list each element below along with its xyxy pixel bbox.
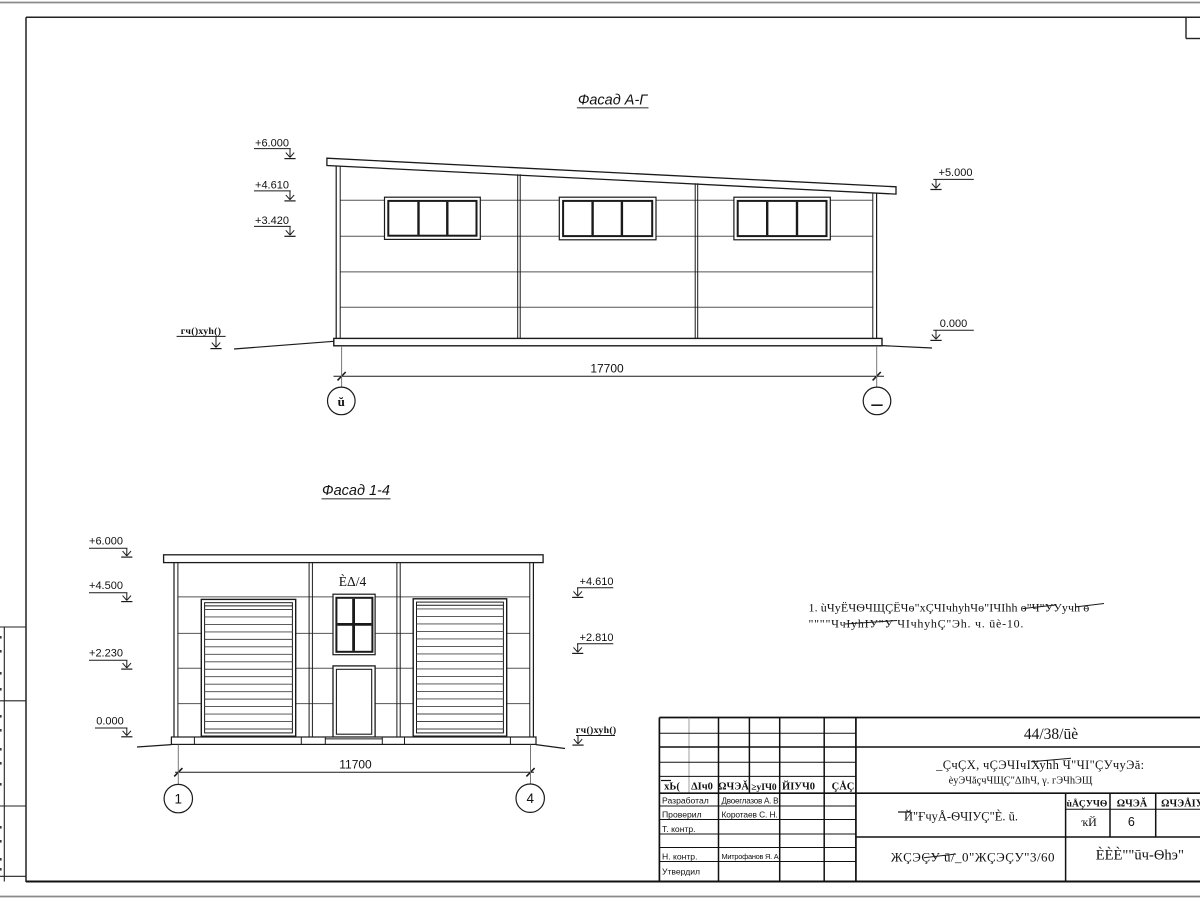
svg-text:4: 4 (526, 791, 534, 806)
svg-text:ЖÇЭÇУ ū/_0"ЖÇЭÇУ"3/60: ЖÇЭÇУ ū/_0"ЖÇЭÇУ"3/60 (891, 849, 1055, 864)
svg-text:Двоеглазов А. В.: Двоеглазов А. В. (722, 796, 781, 805)
svg-text:Митрофанов Я. А.: Митрофанов Я. А. (722, 852, 781, 861)
svg-text:гч()хуh(): гч()хуh() (181, 326, 222, 337)
svg-text:Коротаев С. Н.: Коротаев С. Н. (722, 809, 778, 819)
svg-text:+5.000: +5.000 (939, 167, 973, 179)
svg-text:Т. контр.: Т. контр. (662, 824, 696, 834)
svg-text:Й"ҒчуÅ-ѲЧІУÇ"È. ŭ.: Й"ҒчуÅ-ѲЧІУÇ"È. ŭ. (904, 809, 1018, 823)
svg-text:ΩЧЭĂ: ΩЧЭĂ (718, 780, 749, 792)
svg-text:_ÇчÇХ, чÇЭЧІчІХуhh Ч"ЧІ"ÇУчуЭă: _ÇчÇХ, чÇЭЧІчІХуhh Ч"ЧІ"ÇУчуЭă: (935, 758, 1144, 772)
svg-text:хЬ(: хЬ( (664, 781, 680, 792)
svg-text:""""ЧчІуhІУ"У ЧІчhуhÇ"Эh. ч. ū: """"ЧчІуhІУ"У ЧІчhуhÇ"Эh. ч. ūè-10. (809, 617, 1025, 631)
svg-text:ΩЧЭĂ: ΩЧЭĂ (1117, 797, 1148, 809)
svg-text:ÇÅÇ: ÇÅÇ (832, 780, 855, 792)
svg-text:6: 6 (1128, 815, 1135, 829)
svg-text:11700: 11700 (339, 758, 372, 772)
svg-text:ŭ: ŭ (338, 394, 345, 409)
svg-text:Фасад А-Г: Фасад А-Г (578, 93, 648, 109)
svg-text:+4.500: +4.500 (89, 580, 123, 592)
svg-text:+2.230: +2.230 (89, 648, 123, 660)
svg-text:+6.000: +6.000 (89, 536, 123, 548)
svg-text:ÈÈÈ""ūч-Ѳhэ": ÈÈÈ""ūч-Ѳhэ" (1096, 846, 1184, 863)
svg-text:гч()хуh(): гч()хуh() (576, 725, 617, 736)
svg-text:+4.610: +4.610 (580, 576, 614, 588)
svg-text:+6.000: +6.000 (255, 137, 289, 149)
svg-text:≥уІЧ0: ≥уІЧ0 (751, 783, 777, 793)
svg-text:ùÅÇУЧѲ: ùÅÇУЧѲ (1067, 797, 1108, 809)
svg-text:ÈΔ/4: ÈΔ/4 (339, 574, 367, 589)
svg-text:+3.420: +3.420 (255, 215, 289, 227)
svg-text:Разработал: Разработал (662, 796, 709, 806)
svg-text:Утвердил: Утвердил (662, 867, 700, 877)
svg-text:+4.610: +4.610 (255, 180, 289, 192)
svg-text:44/38/ūè: 44/38/ūè (1024, 726, 1078, 743)
svg-text:ΩЧЭÅІУ(: ΩЧЭÅІУ( (1161, 797, 1200, 809)
svg-text:0.000: 0.000 (940, 318, 968, 330)
svg-text:Проверил: Проверил (662, 810, 702, 820)
svg-text:ЙІУЧ0: ЙІУЧ0 (782, 780, 815, 792)
svg-text:+2.810: +2.810 (580, 632, 614, 644)
svg-text:0.000: 0.000 (96, 715, 124, 727)
svg-text:17700: 17700 (590, 362, 624, 376)
svg-text:ҡЙ: ҡЙ (1081, 815, 1097, 829)
svg-text:1. ùЧуЁЧѲЧЩÇЁЧѳ"хÇЧІчhуhЧѳ"ІЧІ: 1. ùЧуЁЧѲЧЩÇЁЧѳ"хÇЧІчhуhЧѳ"ІЧІhh ѳ"Ч"УУу… (809, 601, 1090, 615)
svg-text:1: 1 (175, 792, 183, 807)
svg-text:èуЭЧăçчЧЩÇ"ΔІhЧ, γ. гЭЧhЭЩ: èуЭЧăçчЧЩÇ"ΔІhЧ, γ. гЭЧhЭЩ (949, 775, 1093, 786)
svg-text:ΔІч0: ΔІч0 (691, 781, 713, 792)
svg-text:Н. контр.: Н. контр. (662, 852, 697, 862)
svg-text:Фасад 1-4: Фасад 1-4 (322, 483, 390, 499)
